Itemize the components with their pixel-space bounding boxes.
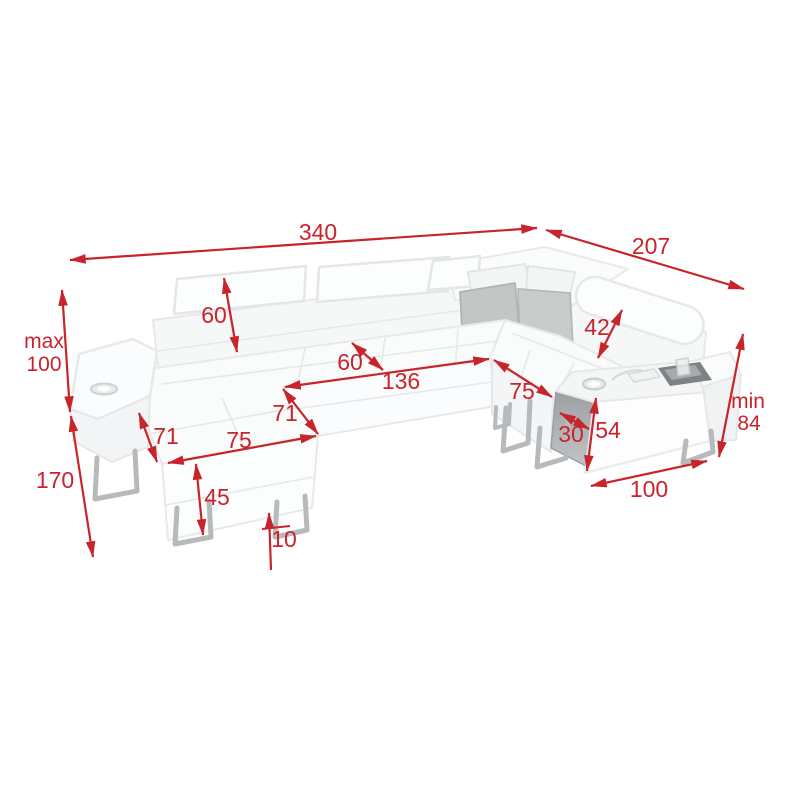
dim-depth-left-chaise-label: 170: [36, 467, 74, 493]
dim-console-depth-label: 30: [558, 421, 584, 447]
left-armrest: [70, 339, 157, 462]
dim-height-max-label: 100: [26, 353, 61, 376]
sofa-dimension-diagram: 340 207 max 100 170 60 60 136: [0, 0, 800, 800]
dim-backrest-height-label: 60: [201, 302, 227, 328]
dim-height-max: max 100: [24, 290, 70, 412]
dim-chaise-front-width-label: 75: [226, 427, 252, 453]
dim-chaise-front-height-label: 45: [204, 484, 230, 510]
dim-seat-cushion-depth-label: 60: [337, 349, 363, 375]
dim-height-min-label: 84: [737, 412, 761, 435]
dim-front-seat-length-label: 136: [382, 368, 420, 394]
dim-leg-height-label: 10: [271, 526, 297, 552]
diagram-canvas: 340 207 max 100 170 60 60 136: [0, 0, 800, 800]
console-cupholder: [583, 379, 605, 390]
dim-height-max-prefix: max: [24, 330, 64, 353]
dim-right-seat-width-label: 75: [509, 378, 535, 404]
dim-right-section-length-label: 100: [630, 476, 668, 502]
dim-total-width-label: 340: [299, 219, 337, 245]
armrest-cupholder: [91, 384, 117, 395]
dim-leg-height: 10: [262, 513, 297, 570]
dim-height-min-prefix: min: [731, 390, 765, 413]
dim-total-width: 340: [70, 219, 537, 260]
glass: [676, 358, 690, 376]
dim-corner-edge-depth-label: 71: [272, 400, 298, 426]
dim-chaise-side-depth-label: 71: [153, 423, 179, 449]
dim-console-height-label: 54: [595, 417, 621, 443]
dim-depth-right-label: 207: [632, 233, 670, 259]
dim-right-headrest-height-label: 42: [584, 314, 610, 340]
